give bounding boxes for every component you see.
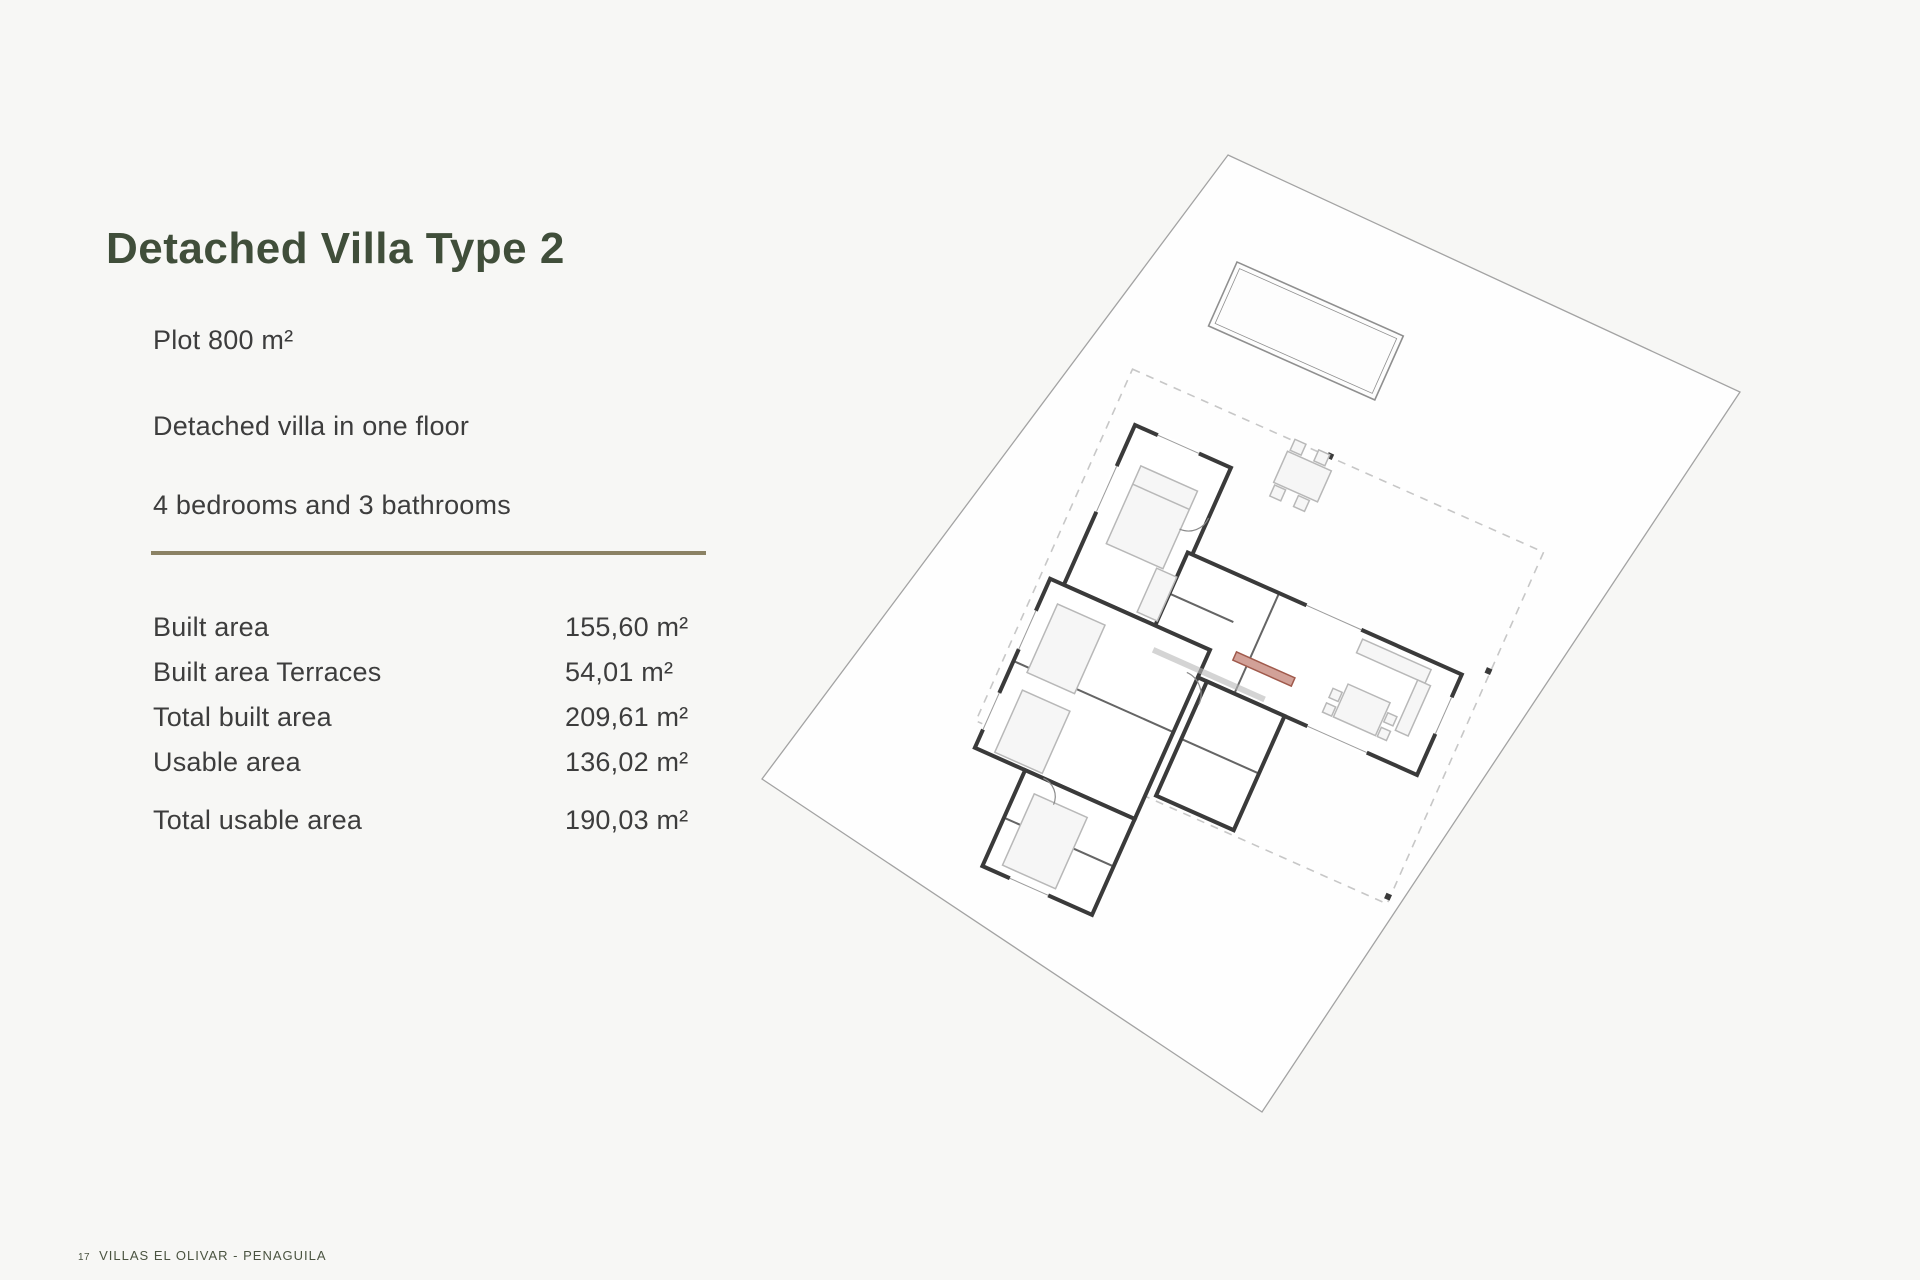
area-label: Usable area	[153, 740, 565, 785]
brochure-page: Detached Villa Type 2 Plot 800 m² Detach…	[0, 0, 1920, 1280]
table-row: Usable area 136,02 m²	[153, 740, 713, 785]
project-name: VILLAS EL OLIVAR - PENAGUILA	[99, 1248, 326, 1263]
total-area-label: Total usable area	[153, 798, 565, 843]
page-number: 17	[78, 1252, 90, 1263]
window-openings	[932, 419, 1500, 1013]
page-title: Detached Villa Type 2	[106, 227, 565, 271]
plot-boundary	[762, 155, 1740, 1112]
area-table: Built area 155,60 m² Built area Terraces…	[153, 605, 713, 785]
table-row: Built area 155,60 m²	[153, 605, 713, 650]
pool	[1209, 262, 1404, 400]
bath-wing	[1156, 681, 1284, 830]
divider-rule	[151, 551, 706, 555]
area-value: 54,01 m²	[565, 650, 673, 695]
area-value: 155,60 m²	[565, 605, 688, 650]
area-total-row: Total usable area 190,03 m²	[153, 798, 713, 843]
rooms-text: 4 bedrooms and 3 bathrooms	[153, 491, 511, 521]
table-row: Total built area 209,61 m²	[153, 695, 713, 740]
outdoor-dining-set	[1268, 439, 1337, 515]
table-row: Built area Terraces 54,01 m²	[153, 650, 713, 695]
terrace-dashed-outline	[976, 369, 1544, 904]
floors-text: Detached villa in one floor	[153, 412, 469, 442]
area-label: Built area Terraces	[153, 650, 565, 695]
area-label: Built area	[153, 605, 565, 650]
kitchen-counter-accent	[1233, 652, 1295, 686]
bedroom-wing-lower	[975, 579, 1210, 819]
living-kitchen-bar	[1143, 552, 1462, 775]
total-area-value: 190,03 m²	[565, 798, 688, 843]
furniture	[951, 458, 1464, 995]
area-value: 209,61 m²	[565, 695, 688, 740]
page-footer: 17 VILLAS EL OLIVAR - PENAGUILA	[78, 1248, 327, 1263]
area-label: Total built area	[153, 695, 565, 740]
plot-size-text: Plot 800 m²	[153, 326, 293, 356]
bedroom-wing-top	[1064, 425, 1231, 628]
house-floorplan	[923, 366, 1546, 1024]
area-value: 136,02 m²	[565, 740, 688, 785]
bedroom-wing-bottom	[982, 770, 1134, 915]
